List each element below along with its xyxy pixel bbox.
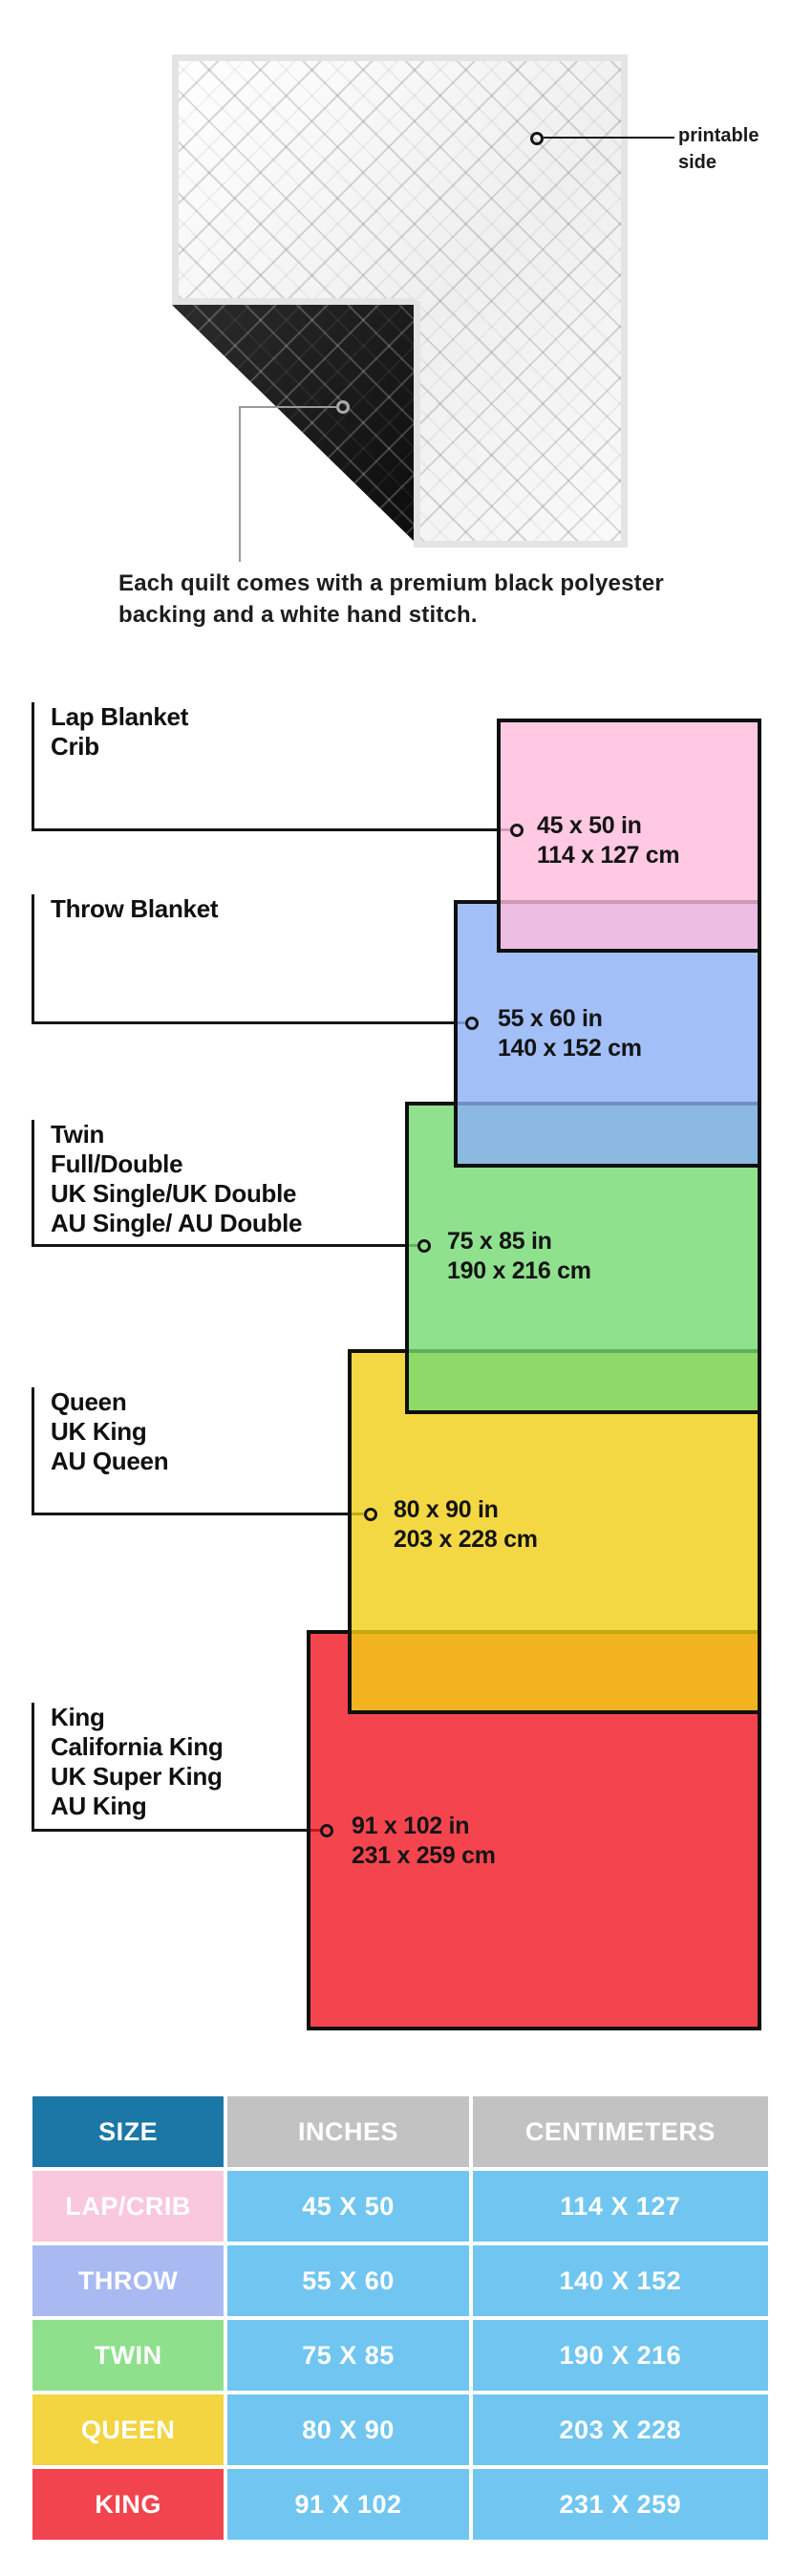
name-line: UK Super King xyxy=(51,1762,223,1792)
name-line: UK Single/UK Double xyxy=(51,1179,302,1209)
quilt-caption: Each quilt comes with a premium black po… xyxy=(118,568,724,631)
printable-side-callout-dot xyxy=(530,132,544,145)
quilt-binding-left xyxy=(172,54,179,301)
name-line: Throw Blanket xyxy=(51,894,218,924)
tick-line-king xyxy=(32,1703,34,1832)
callout-dot-queen xyxy=(364,1508,377,1521)
header-cell-inches: INCHES xyxy=(227,2096,468,2167)
row-label: KING xyxy=(32,2469,224,2540)
size-inches: 80 x 90 in xyxy=(394,1495,538,1525)
row-inches: 55 X 60 xyxy=(227,2245,468,2316)
table-header-row: SIZE INCHES CENTIMETERS xyxy=(32,2096,768,2167)
name-line: AU King xyxy=(51,1792,223,1821)
name-line: AU Queen xyxy=(51,1447,168,1476)
size-centimeters: 203 x 228 cm xyxy=(394,1525,538,1555)
row-inches: 75 X 85 xyxy=(227,2320,468,2391)
callout-dot-lap-crib xyxy=(510,824,524,837)
name-line: UK King xyxy=(51,1417,168,1447)
leader-line-queen xyxy=(32,1513,364,1515)
header-cell-size: SIZE xyxy=(32,2096,224,2167)
name-line: King xyxy=(51,1703,223,1732)
row-inches: 91 X 102 xyxy=(227,2469,468,2540)
leader-line-lap-crib xyxy=(32,828,510,831)
size-inches: 91 x 102 in xyxy=(352,1812,496,1841)
size-inches: 55 x 60 in xyxy=(498,1004,642,1034)
size-item-names-lap-crib: Lap Blanket Crib xyxy=(51,702,188,762)
quilt-binding-right xyxy=(621,54,628,547)
name-line: Queen xyxy=(51,1387,168,1417)
row-inches: 45 X 50 xyxy=(227,2171,468,2242)
quilt-binding-top xyxy=(172,54,628,61)
name-line: AU Single/ AU Double xyxy=(51,1209,302,1238)
table-row: QUEEN 80 X 90 203 X 228 xyxy=(32,2394,768,2465)
name-line: California King xyxy=(51,1732,223,1762)
size-inches: 45 x 50 in xyxy=(537,811,679,841)
row-label: QUEEN xyxy=(32,2394,224,2465)
size-label-lap-crib: 45 x 50 in 114 x 127 cm xyxy=(537,811,679,870)
name-line: Crib xyxy=(51,732,188,762)
table-row: THROW 55 X 60 140 X 152 xyxy=(32,2245,768,2316)
leader-line-king xyxy=(32,1829,320,1832)
tick-line-queen xyxy=(32,1387,34,1515)
quilt-size-guide-infographic: printable side Each quilt comes with a p… xyxy=(0,0,791,2576)
quilt-binding-fold-top xyxy=(172,298,414,305)
printable-side-label: printable side xyxy=(678,122,778,176)
size-centimeters: 190 x 216 cm xyxy=(447,1256,591,1286)
tick-line-lap-crib xyxy=(32,702,34,831)
row-centimeters: 114 X 127 xyxy=(473,2171,768,2242)
size-label-king: 91 x 102 in 231 x 259 cm xyxy=(352,1812,496,1871)
backing-callout-dot xyxy=(336,400,350,414)
size-label-twin: 75 x 85 in 190 x 216 cm xyxy=(447,1227,591,1286)
tick-line-twin xyxy=(32,1120,34,1247)
size-centimeters: 231 x 259 cm xyxy=(352,1841,496,1871)
size-centimeters: 140 x 152 cm xyxy=(498,1034,642,1063)
row-centimeters: 140 X 152 xyxy=(473,2245,768,2316)
header-cell-centimeters: CENTIMETERS xyxy=(473,2096,768,2167)
row-centimeters: 190 X 216 xyxy=(473,2320,768,2391)
size-centimeters: 114 x 127 cm xyxy=(537,841,679,870)
name-line: Lap Blanket xyxy=(51,702,188,732)
tick-line-throw xyxy=(32,894,34,1024)
backing-callout-line-vertical xyxy=(239,406,241,562)
leader-line-twin xyxy=(32,1244,417,1247)
size-label-throw: 55 x 60 in 140 x 152 cm xyxy=(498,1004,642,1063)
size-item-names-king: King California King UK Super King AU Ki… xyxy=(51,1703,223,1821)
quilt-backing-triangle xyxy=(172,305,414,541)
size-table: SIZE INCHES CENTIMETERS LAP/CRIB 45 X 50… xyxy=(29,2093,772,2544)
callout-dot-twin xyxy=(417,1239,431,1253)
table-row: TWIN 75 X 85 190 X 216 xyxy=(32,2320,768,2391)
table-row: LAP/CRIB 45 X 50 114 X 127 xyxy=(32,2171,768,2242)
backing-callout-line-horizontal xyxy=(239,406,338,408)
row-centimeters: 231 X 259 xyxy=(473,2469,768,2540)
row-inches: 80 X 90 xyxy=(227,2394,468,2465)
quilt-binding-fold-vertical xyxy=(414,301,420,547)
size-label-queen: 80 x 90 in 203 x 228 cm xyxy=(394,1495,538,1555)
size-item-names-twin: Twin Full/Double UK Single/UK Double AU … xyxy=(51,1120,302,1238)
row-label: LAP/CRIB xyxy=(32,2171,224,2242)
callout-dot-throw xyxy=(465,1017,479,1030)
leader-line-throw xyxy=(32,1021,465,1024)
row-centimeters: 203 X 228 xyxy=(473,2394,768,2465)
name-line: Full/Double xyxy=(51,1149,302,1179)
size-item-names-throw: Throw Blanket xyxy=(51,894,218,924)
name-line: Twin xyxy=(51,1120,302,1149)
callout-dot-king xyxy=(320,1824,333,1837)
size-item-names-queen: Queen UK King AU Queen xyxy=(51,1387,168,1476)
row-label: THROW xyxy=(32,2245,224,2316)
size-inches: 75 x 85 in xyxy=(447,1227,591,1256)
row-label: TWIN xyxy=(32,2320,224,2391)
quilt-binding-bottom xyxy=(414,541,628,547)
table-row: KING 91 X 102 231 X 259 xyxy=(32,2469,768,2540)
printable-side-callout-line xyxy=(544,137,674,139)
